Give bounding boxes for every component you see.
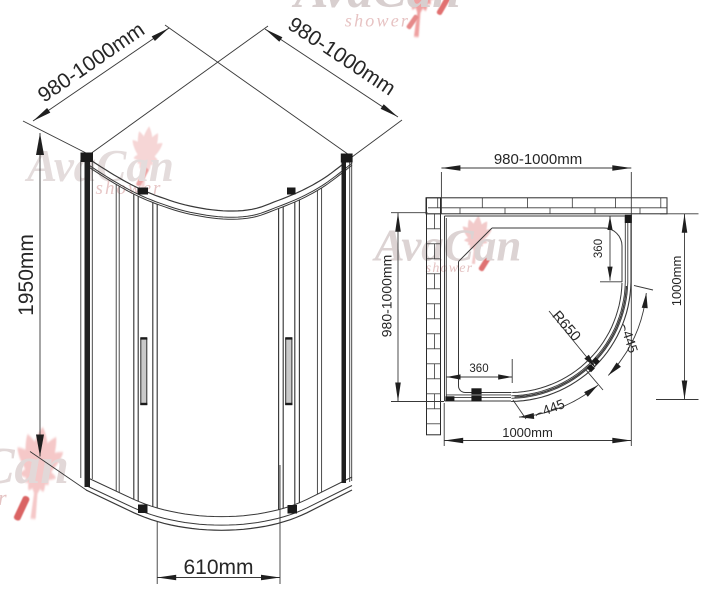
svg-text:980-1000mm: 980-1000mm [494,151,582,168]
svg-text:360: 360 [593,239,605,258]
svg-text:shower: shower [345,11,410,31]
svg-text:1950mm: 1950mm [15,234,38,316]
svg-text:shower: shower [96,178,163,199]
svg-text:980-1000mm: 980-1000mm [379,255,395,338]
svg-text:1000mm: 1000mm [669,256,684,307]
svg-text:AvaCan: AvaCan [0,438,69,495]
svg-text:shower: shower [0,485,9,510]
svg-text:610mm: 610mm [183,556,253,579]
svg-text:360: 360 [469,363,488,375]
svg-text:1000mm: 1000mm [502,425,553,440]
